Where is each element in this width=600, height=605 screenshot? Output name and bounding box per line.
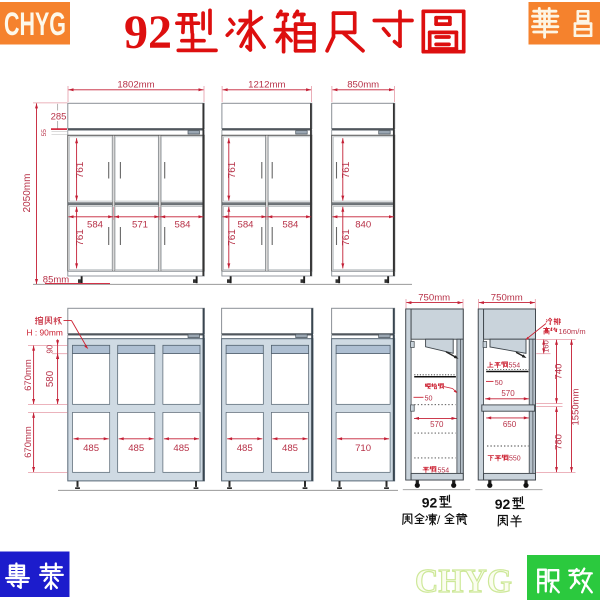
svg-text:761: 761 xyxy=(227,229,238,246)
svg-text:554: 554 xyxy=(438,467,450,474)
svg-text:85mm: 85mm xyxy=(43,275,69,286)
svg-text:761: 761 xyxy=(75,229,86,246)
svg-text:1212mm: 1212mm xyxy=(248,79,285,90)
svg-text:160: 160 xyxy=(542,340,551,353)
svg-text:710: 710 xyxy=(355,443,371,454)
svg-text:485: 485 xyxy=(237,443,253,454)
svg-text:550: 550 xyxy=(509,456,521,463)
svg-text:CHYG: CHYG xyxy=(415,563,512,600)
svg-text:2050mm: 2050mm xyxy=(22,174,33,213)
svg-text:670mm: 670mm xyxy=(23,359,34,391)
svg-text:584: 584 xyxy=(174,220,191,231)
svg-text:485: 485 xyxy=(173,443,189,454)
svg-text:1802mm: 1802mm xyxy=(117,79,154,90)
svg-text:580: 580 xyxy=(45,370,56,387)
svg-text:584: 584 xyxy=(237,220,254,231)
svg-text:571: 571 xyxy=(132,220,148,231)
svg-text:285: 285 xyxy=(51,112,67,123)
svg-text:740: 740 xyxy=(554,364,565,380)
svg-text:840: 840 xyxy=(355,220,371,231)
svg-text:780: 780 xyxy=(554,434,565,450)
svg-text:584: 584 xyxy=(282,220,299,231)
svg-text:92: 92 xyxy=(124,6,172,59)
svg-text:H : 90mm: H : 90mm xyxy=(27,327,63,337)
svg-text:485: 485 xyxy=(83,443,99,454)
svg-text:160m/m: 160m/m xyxy=(559,327,586,336)
svg-text:485: 485 xyxy=(128,443,144,454)
svg-text:761: 761 xyxy=(341,161,352,178)
svg-text:1550mm: 1550mm xyxy=(571,388,582,425)
svg-text:750mm: 750mm xyxy=(418,292,450,303)
svg-text:55: 55 xyxy=(41,129,48,137)
svg-text:761: 761 xyxy=(75,161,86,178)
svg-text:90: 90 xyxy=(46,344,55,353)
svg-text:650: 650 xyxy=(503,420,517,429)
svg-text:554: 554 xyxy=(509,363,521,370)
svg-text:570: 570 xyxy=(430,420,444,429)
svg-text:485: 485 xyxy=(282,443,298,454)
svg-text:584: 584 xyxy=(87,220,104,231)
svg-text:92: 92 xyxy=(422,495,438,511)
svg-text:850mm: 850mm xyxy=(347,79,379,90)
svg-text:50: 50 xyxy=(495,378,503,387)
svg-text:92: 92 xyxy=(495,496,511,512)
svg-text:670mm: 670mm xyxy=(23,426,34,458)
svg-text:50: 50 xyxy=(425,393,433,402)
svg-text:CHYG: CHYG xyxy=(4,6,66,42)
svg-text:761: 761 xyxy=(341,229,352,246)
svg-text:750mm: 750mm xyxy=(491,292,523,303)
svg-text:761: 761 xyxy=(227,161,238,178)
svg-text:570: 570 xyxy=(501,389,515,398)
